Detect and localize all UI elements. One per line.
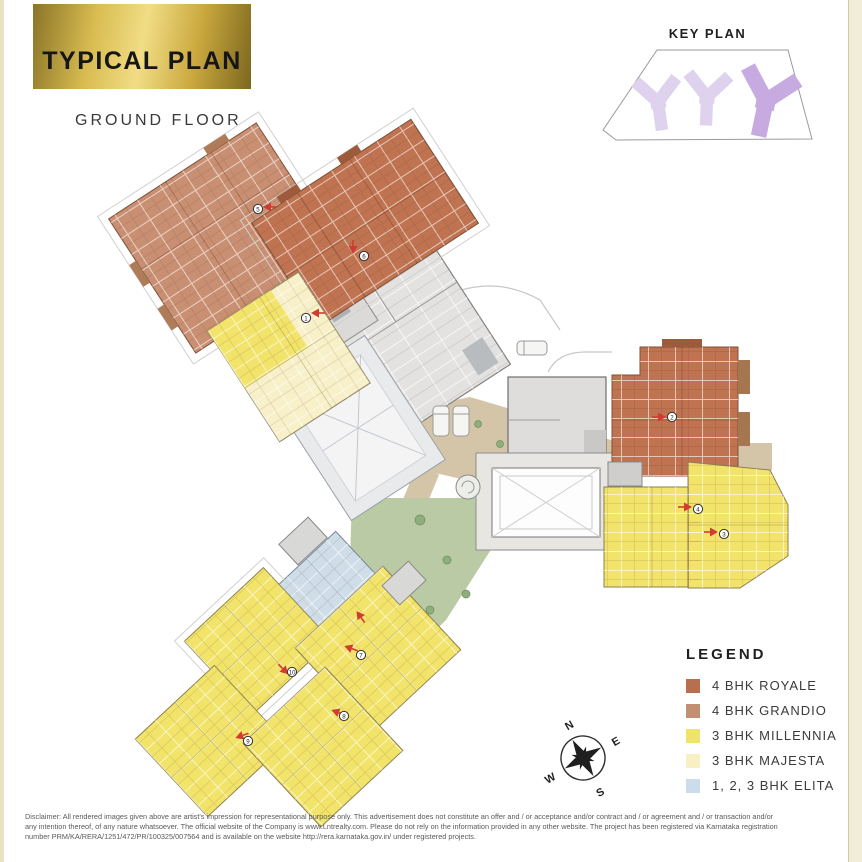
svg-text:9: 9 bbox=[246, 738, 250, 745]
elita-swatch bbox=[686, 779, 700, 793]
grandio-swatch bbox=[686, 704, 700, 718]
legend-label: 4 BHK ROYALE bbox=[712, 678, 817, 693]
svg-text:5: 5 bbox=[256, 206, 260, 213]
disclaimer-line-2: any intention thereof, of any nature wha… bbox=[25, 822, 847, 832]
legend: LEGEND 4 BHK ROYALE 4 BHK GRANDIO 3 BHK … bbox=[686, 646, 837, 798]
svg-text:7: 7 bbox=[359, 652, 363, 659]
spiral-landscape-feature bbox=[456, 475, 480, 499]
disclaimer-line-3: number PRM/KA/RERA/1251/472/PR/100325/00… bbox=[25, 832, 847, 842]
majesta-swatch bbox=[686, 754, 700, 768]
legend-item-royale: 4 BHK ROYALE bbox=[686, 673, 837, 698]
legend-label: 3 BHK MAJESTA bbox=[712, 753, 825, 768]
brochure-page: TYPICAL PLAN GROUND FLOOR KEY PLAN bbox=[0, 0, 862, 862]
legend-label: 1, 2, 3 BHK ELITA bbox=[712, 778, 834, 793]
disclaimer: Disclaimer: All rendered images given ab… bbox=[25, 812, 847, 841]
disclaimer-line-1: Disclaimer: All rendered images given ab… bbox=[25, 812, 847, 822]
compass-e: E bbox=[610, 735, 622, 749]
svg-text:10: 10 bbox=[289, 669, 296, 676]
svg-text:6: 6 bbox=[362, 253, 366, 260]
wing-royale-right bbox=[612, 339, 750, 476]
swimming-pool bbox=[476, 453, 614, 550]
gathering-hall bbox=[508, 377, 606, 460]
legend-item-millennia: 3 BHK MILLENNIA bbox=[686, 723, 837, 748]
compass-n: N bbox=[563, 719, 576, 733]
compass-s: S bbox=[594, 786, 606, 800]
legend-item-majesta: 3 BHK MAJESTA bbox=[686, 748, 837, 773]
svg-text:3: 3 bbox=[722, 531, 726, 538]
wing-millennia-right bbox=[604, 462, 788, 588]
compass-rose: N E S W bbox=[541, 716, 625, 800]
royale-swatch bbox=[686, 679, 700, 693]
legend-label: 3 BHK MILLENNIA bbox=[712, 728, 837, 743]
compass-w: W bbox=[543, 771, 559, 787]
svg-text:8: 8 bbox=[342, 713, 346, 720]
svg-text:2: 2 bbox=[670, 414, 674, 421]
legend-item-grandio: 4 BHK GRANDIO bbox=[686, 698, 837, 723]
legend-label: 4 BHK GRANDIO bbox=[712, 703, 827, 718]
legend-title: LEGEND bbox=[686, 646, 837, 663]
millennia-swatch bbox=[686, 729, 700, 743]
legend-item-elita: 1, 2, 3 BHK ELITA bbox=[686, 773, 837, 798]
svg-text:1: 1 bbox=[304, 315, 308, 322]
svg-text:4: 4 bbox=[696, 506, 700, 513]
